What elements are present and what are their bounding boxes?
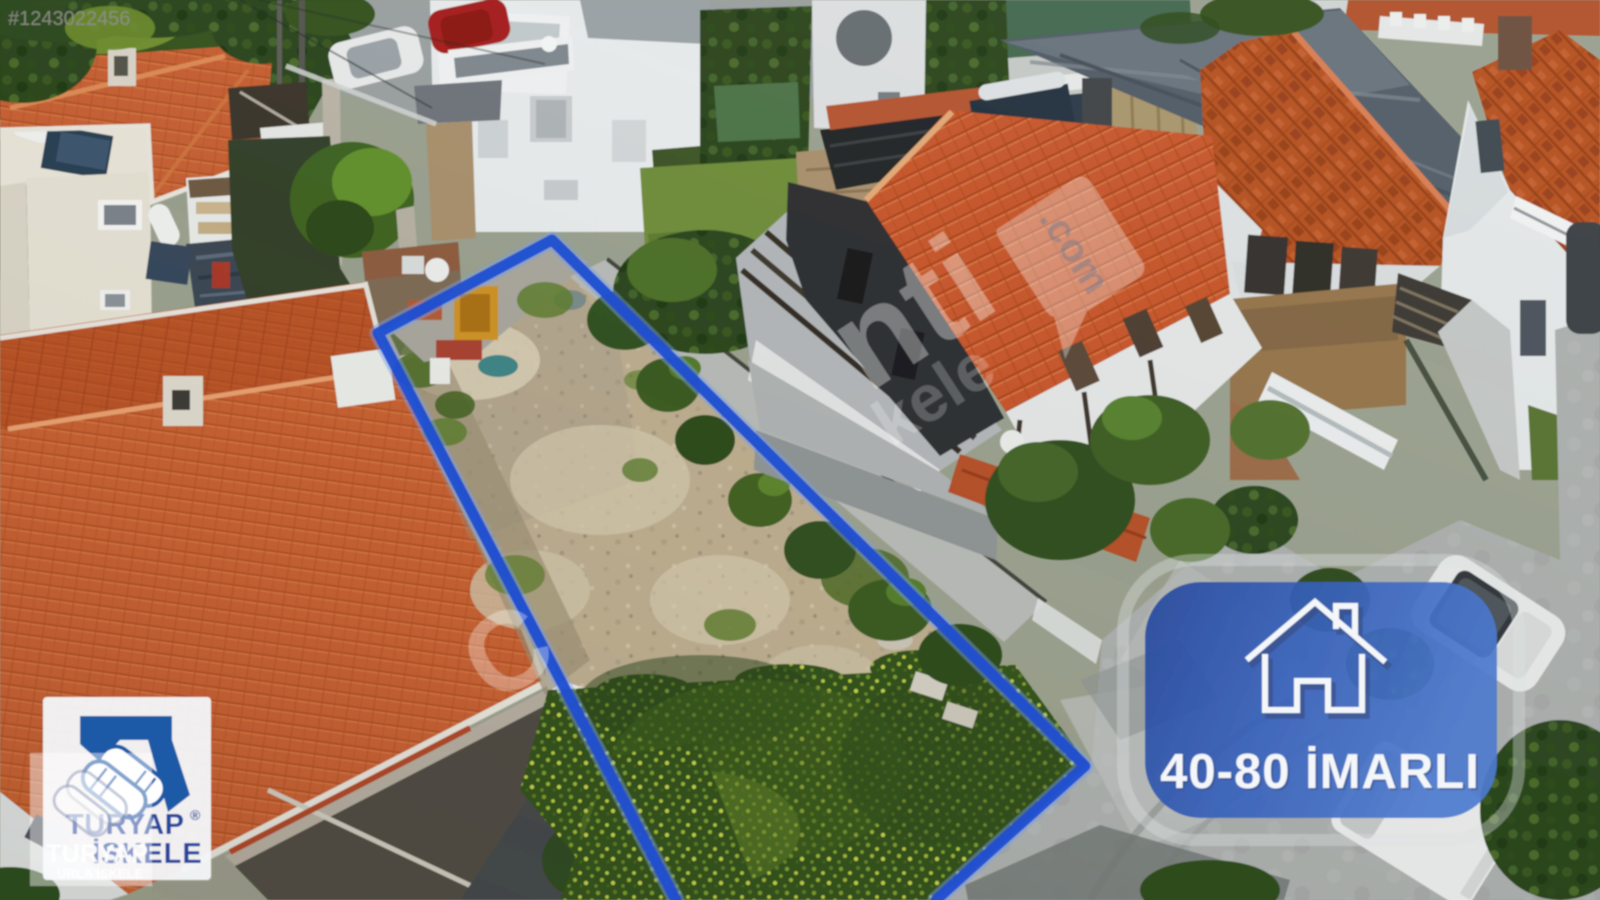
svg-text:TURYAP: TURYAP (46, 840, 149, 868)
svg-text:®: ® (190, 807, 201, 823)
svg-text:URLA İSKELE: URLA İSKELE (57, 866, 144, 881)
svg-text:40-80 İMARLI: 40-80 İMARLI (1160, 745, 1480, 799)
svg-text:#1243022456: #1243022456 (8, 8, 130, 30)
